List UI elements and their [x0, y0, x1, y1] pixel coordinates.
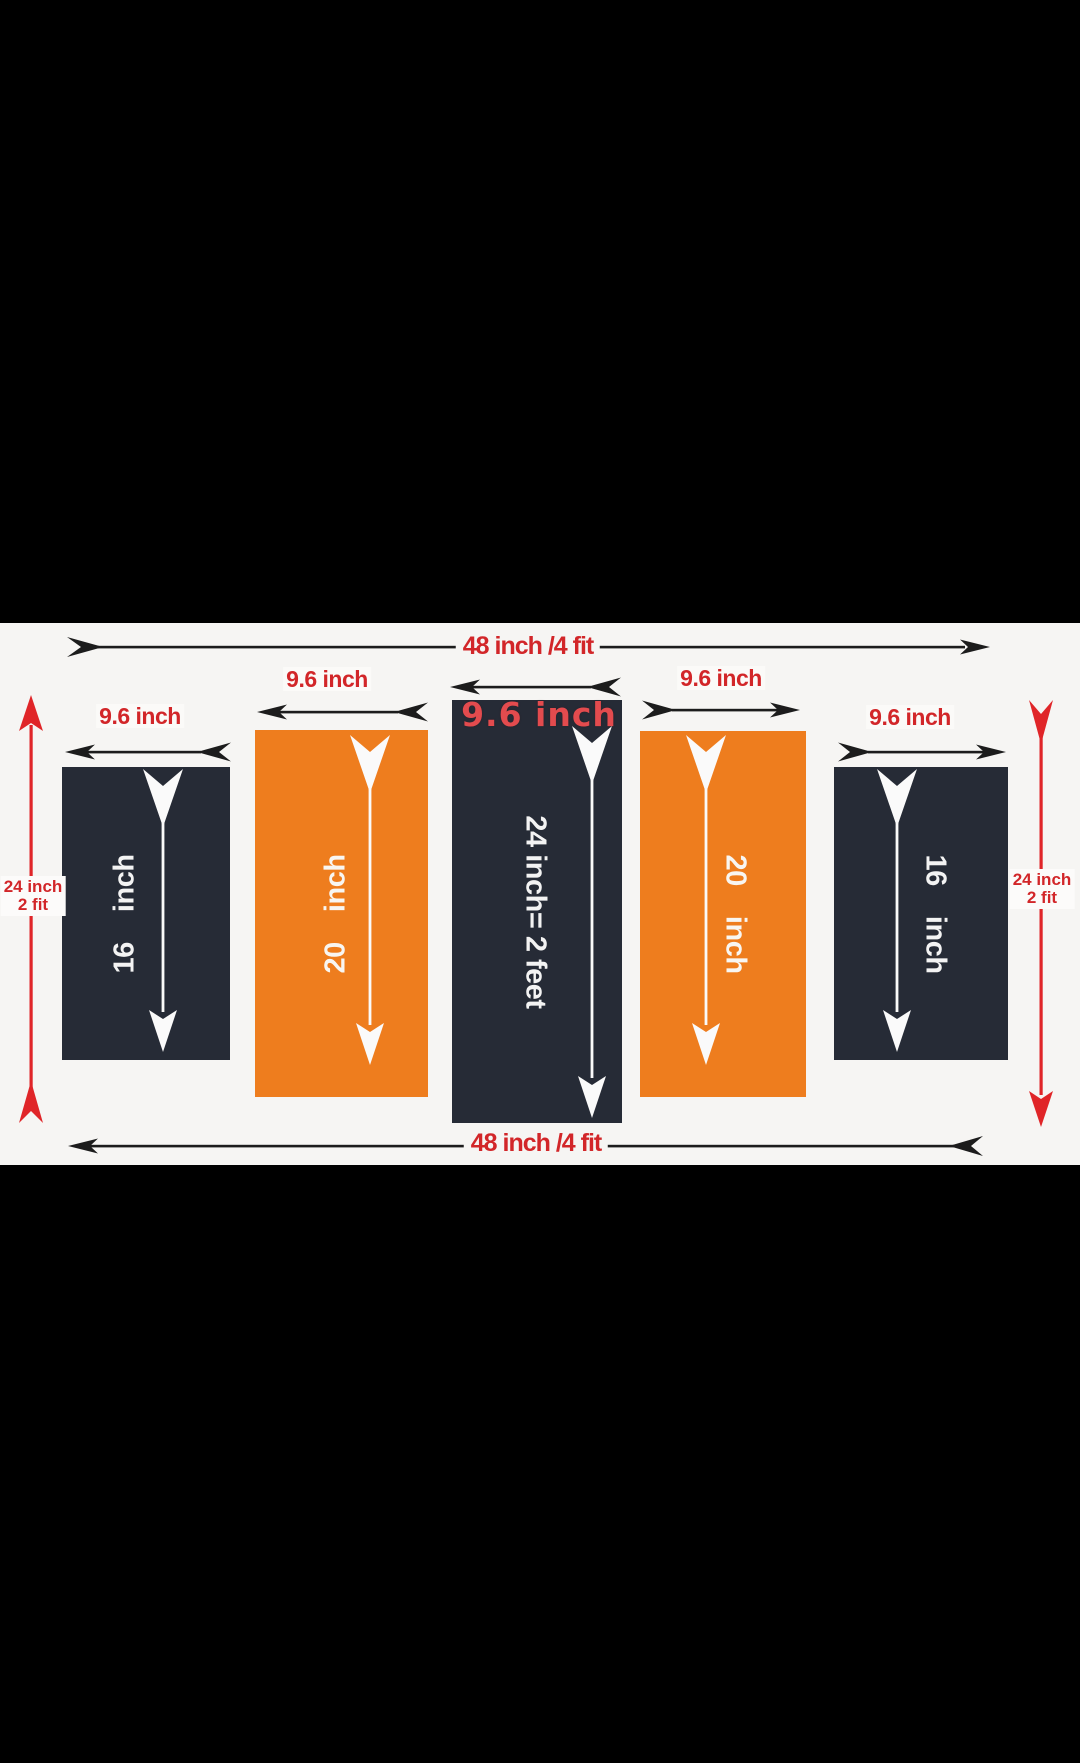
- left-height-line1: 24 inch: [4, 878, 63, 896]
- panel-5: 16 inch: [834, 767, 1008, 1060]
- panel3-height-arrow: [570, 726, 614, 1118]
- panel3-width-overlay-label: 9.6 inch: [461, 695, 617, 734]
- panel5-height-label: 16 inch: [919, 854, 952, 973]
- bottom-dimension-label: 48 inch /4 fit: [464, 1130, 608, 1156]
- panel3-height-label: 24 inch= 2 feet: [519, 815, 552, 1008]
- panel2-width-arrow: [257, 701, 430, 723]
- left-height-line2: 2 fit: [4, 896, 63, 914]
- panel-4: 20 inch: [640, 731, 806, 1097]
- left-height-label: 24 inch 2 fit: [1, 876, 66, 916]
- panel5-width-label: 9.6 inch: [866, 705, 954, 729]
- panel5-height-arrow: [875, 769, 919, 1052]
- right-height-label: 24 inch 2 fit: [1010, 869, 1075, 909]
- panel-2: 20 inch: [255, 730, 428, 1097]
- screenshot-root: 48 inch /4 fit 9.6 inch 9.6 inch 9.6 inc…: [0, 0, 1080, 1763]
- top-dimension-label: 48 inch /4 fit: [456, 633, 600, 659]
- panel4-width-label: 9.6 inch: [677, 666, 765, 690]
- panel1-height-label: 16 inch: [109, 854, 142, 973]
- diagram-canvas: 48 inch /4 fit 9.6 inch 9.6 inch 9.6 inc…: [0, 623, 1080, 1165]
- panel2-height-arrow: [348, 735, 392, 1065]
- right-height-line1: 24 inch: [1013, 871, 1072, 889]
- panel5-width-arrow: [836, 741, 1006, 763]
- panel-3: 24 inch= 2 feet: [452, 700, 622, 1123]
- panel2-width-label: 9.6 inch: [283, 667, 371, 691]
- panel1-width-arrow: [65, 741, 233, 763]
- panel1-width-label: 9.6 inch: [96, 704, 184, 728]
- panel4-height-label: 20 inch: [719, 854, 752, 973]
- panel1-height-arrow: [141, 769, 185, 1052]
- right-height-arrow: [1029, 700, 1053, 1127]
- right-height-line2: 2 fit: [1013, 889, 1072, 907]
- panel2-height-label: 20 inch: [320, 854, 353, 973]
- panel-1: 16 inch: [62, 767, 230, 1060]
- panel4-width-arrow: [640, 699, 800, 721]
